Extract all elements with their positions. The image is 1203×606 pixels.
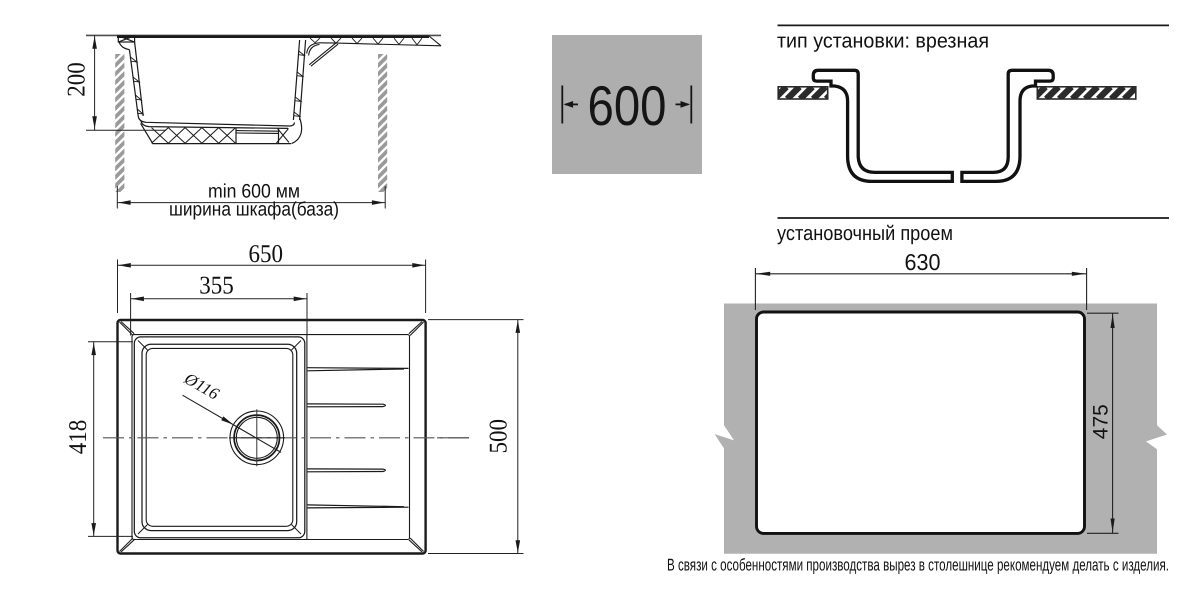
svg-text:ширина шкафа(база): ширина шкафа(база) [169, 199, 339, 221]
svg-text:650: 650 [248, 239, 283, 268]
svg-text:Ø116: Ø116 [180, 368, 222, 403]
svg-text:630: 630 [905, 249, 941, 275]
svg-text:500: 500 [484, 419, 513, 454]
svg-text:475: 475 [1090, 404, 1113, 439]
svg-text:355: 355 [199, 271, 234, 300]
svg-text:В связи с особенностями произв: В связи с особенностями производства выр… [667, 556, 1169, 575]
svg-text:418: 418 [63, 420, 92, 455]
svg-text:установочный проем: установочный проем [777, 222, 953, 245]
svg-text:200: 200 [62, 62, 91, 97]
svg-text:тип установки: врезная: тип установки: врезная [777, 30, 989, 53]
svg-text:600: 600 [588, 74, 667, 137]
